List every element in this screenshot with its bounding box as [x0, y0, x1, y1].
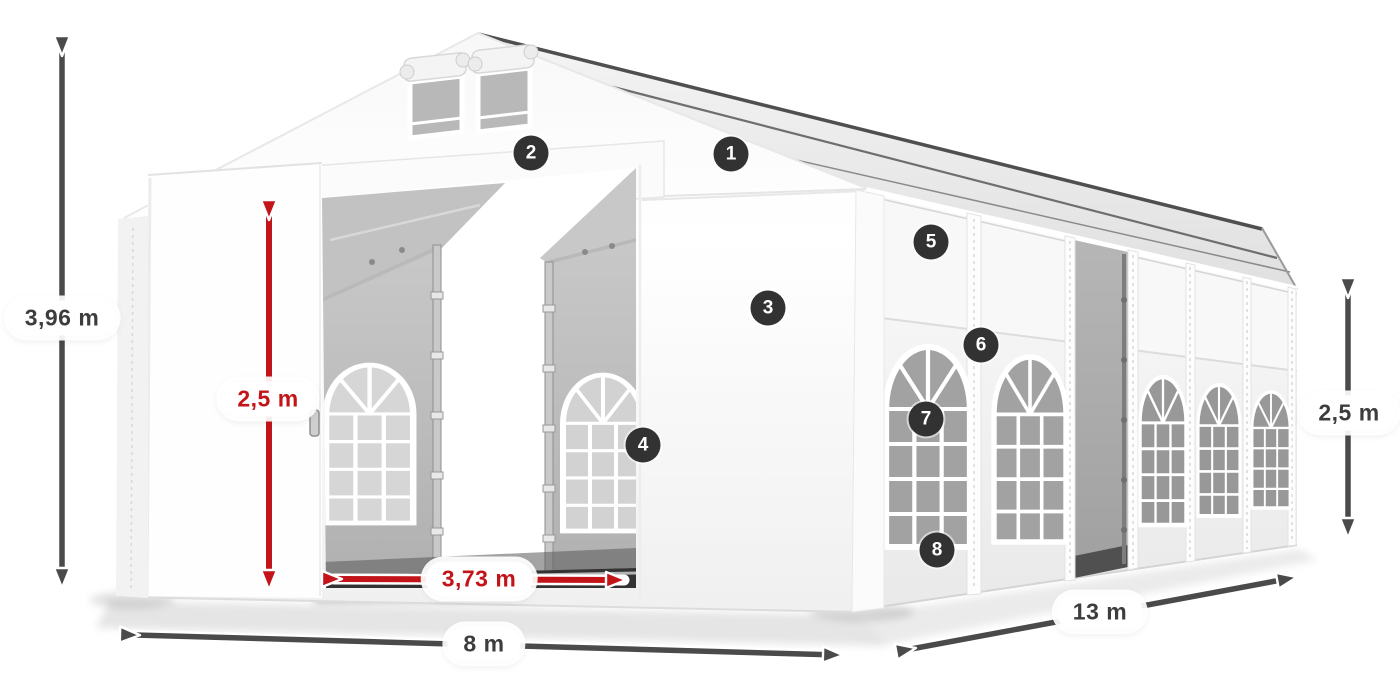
side-window	[1198, 385, 1240, 516]
feature-marker-7[interactable]: 7	[909, 402, 944, 437]
front-door-opening	[322, 160, 643, 600]
feature-marker-2[interactable]: 2	[514, 136, 549, 171]
feature-marker-1[interactable]: 1	[714, 137, 749, 172]
gable-vent-window	[468, 45, 538, 132]
front-left-wall	[116, 216, 148, 598]
corner-post-front-right	[852, 190, 884, 612]
door-width-dimension-label: 3,73 m	[426, 562, 533, 597]
feature-marker-3[interactable]: 3	[751, 291, 786, 326]
door-panel-left	[144, 163, 322, 598]
side-length-dimension-label: 13 m	[1057, 595, 1143, 630]
tent-dimension-diagram: 3,96 m 2,5 m 3,73 m 8 m 13 m 2,5 m 1 2 3…	[0, 0, 1400, 700]
feature-marker-6[interactable]: 6	[964, 328, 999, 363]
tent-illustration	[0, 0, 1400, 700]
side-window	[994, 357, 1066, 542]
interior-window	[326, 365, 413, 523]
interior-pole	[431, 245, 443, 575]
side-window	[1140, 377, 1186, 525]
gable-vent-window	[400, 53, 470, 138]
side-window	[886, 347, 970, 547]
total-height-dimension-label: 3,96 m	[9, 301, 116, 336]
side-door-opening	[1074, 240, 1128, 578]
feature-marker-5[interactable]: 5	[914, 225, 949, 260]
interior-pole	[543, 262, 555, 580]
front-width-dimension-label: 8 m	[447, 627, 520, 662]
feature-marker-4[interactable]: 4	[626, 428, 661, 463]
feature-marker-8[interactable]: 8	[920, 533, 955, 568]
side-height-dimension-label: 2,5 m	[1302, 396, 1395, 431]
door-handle	[310, 410, 319, 436]
side-window	[1252, 392, 1290, 508]
door-height-dimension-label: 2,5 m	[221, 382, 314, 417]
